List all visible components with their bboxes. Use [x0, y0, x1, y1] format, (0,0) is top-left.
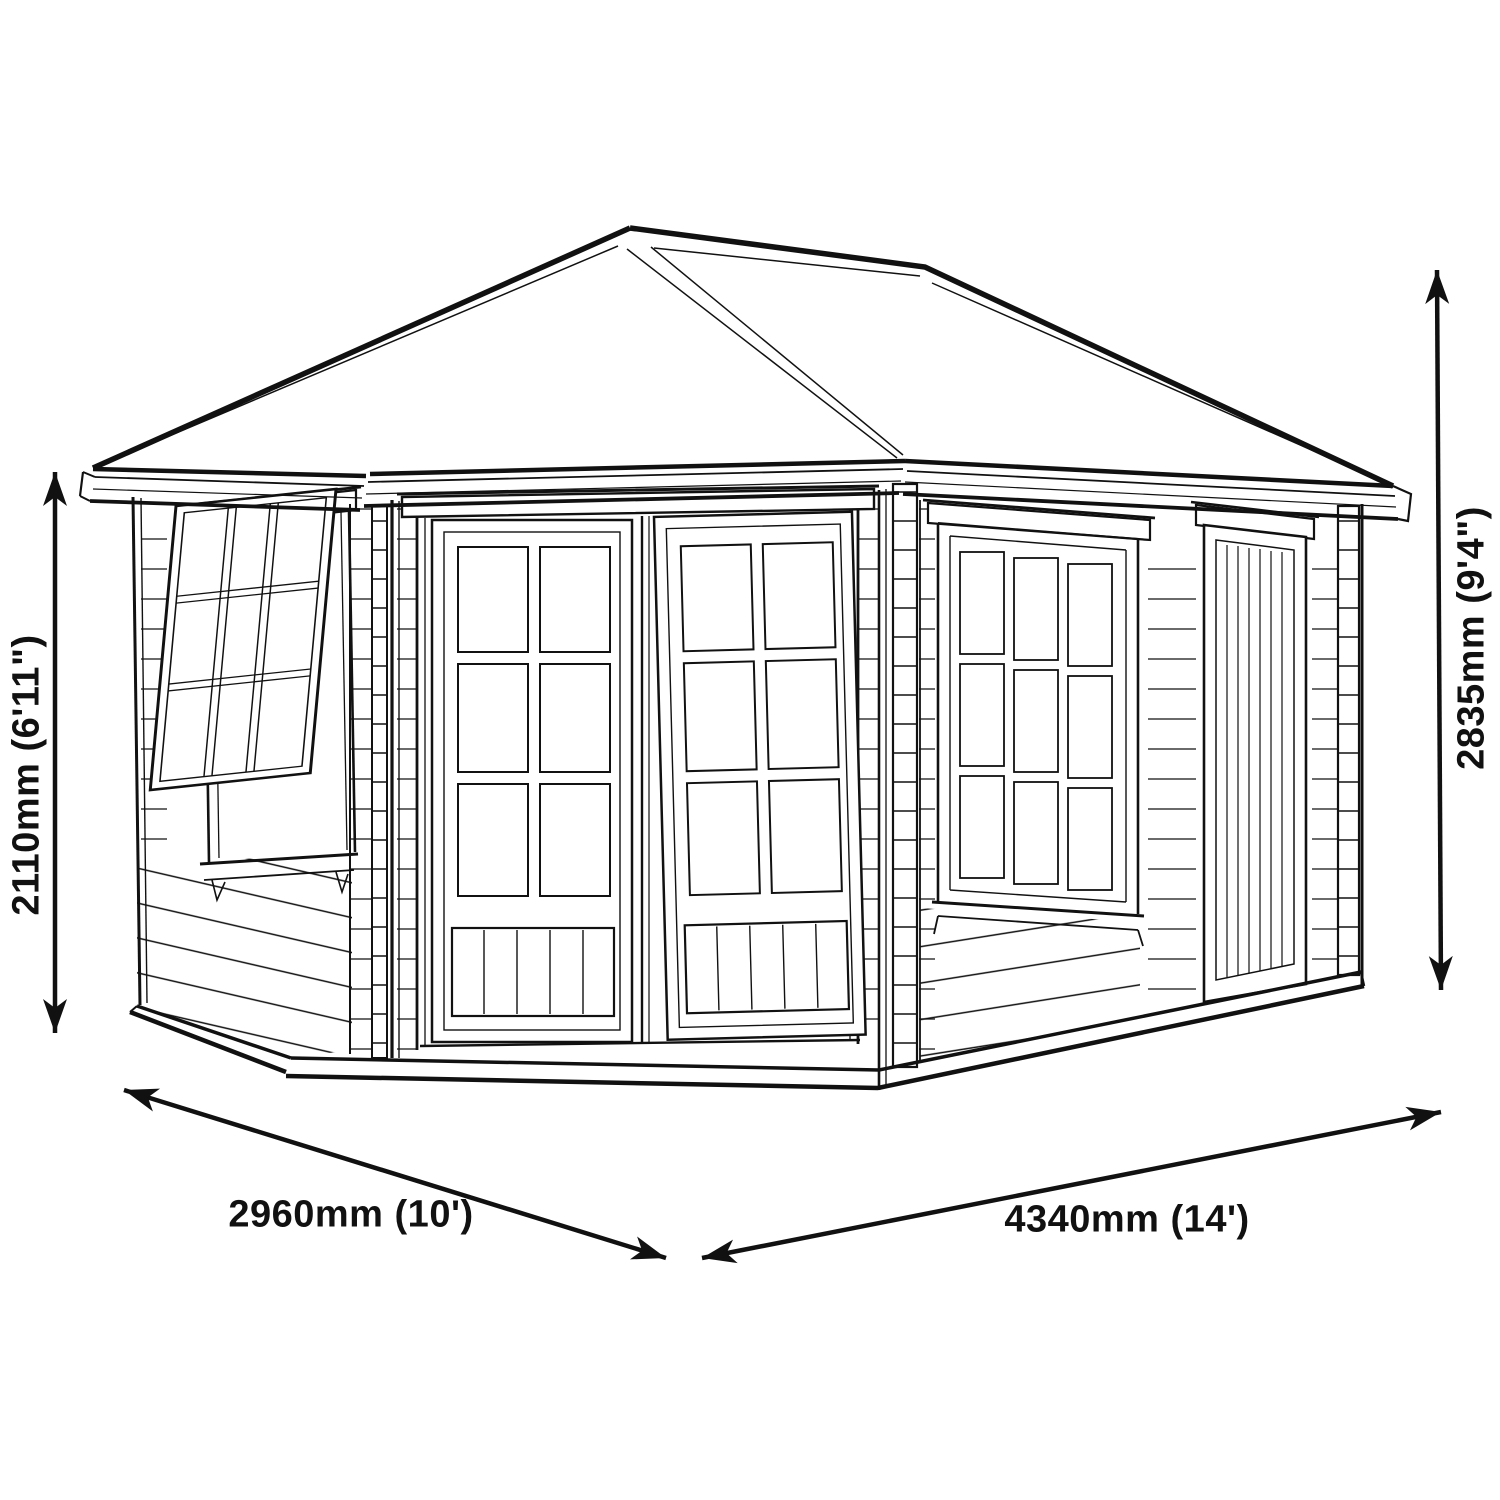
- door-leaf-right-ajar: [654, 512, 866, 1040]
- height-arrow-right: [1437, 270, 1441, 990]
- dimension-label-left-height: 2110mm (6'11"): [6, 634, 49, 915]
- dimension-label-bottom-right-width: 4340mm (14'): [1004, 1199, 1249, 1242]
- roof: [93, 228, 1393, 486]
- dimension-diagram: 2110mm (6'11") 2835mm (9'4") 2960mm (10'…: [0, 0, 1500, 1500]
- left-window: [150, 487, 361, 900]
- open-sash: [150, 489, 336, 790]
- corner-post-right: [1338, 504, 1362, 986]
- summerhouse-line-drawing: [0, 0, 1500, 1500]
- double-doors: [397, 486, 879, 1050]
- dimension-label-bottom-left-width: 2960mm (10'): [228, 1194, 473, 1237]
- dimension-label-right-height: 2835mm (9'4"): [1451, 506, 1494, 770]
- door-leaf-left: [432, 520, 632, 1042]
- corner-post-middle: [879, 484, 920, 1090]
- right-plank-door: [1191, 502, 1319, 1002]
- right-window: [923, 500, 1155, 946]
